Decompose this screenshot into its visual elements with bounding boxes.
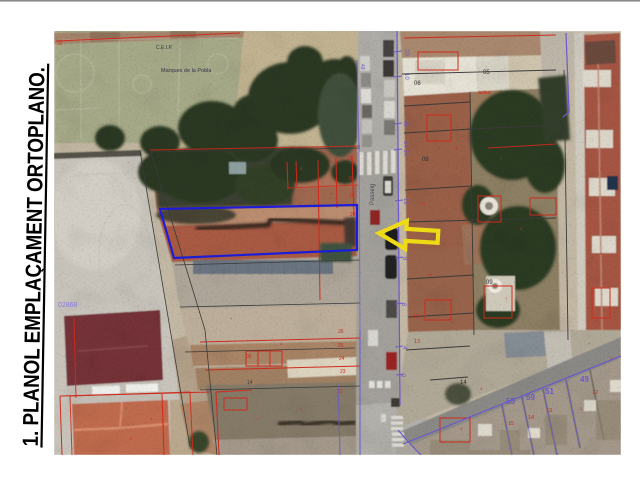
svg-text:06: 06 [414, 81, 421, 87]
svg-text:08: 08 [422, 157, 429, 163]
svg-text:12: 12 [592, 390, 598, 396]
svg-text:23: 23 [340, 369, 346, 375]
svg-text:32: 32 [57, 41, 63, 47]
svg-text:46: 46 [402, 120, 408, 127]
svg-text:00: 00 [246, 354, 252, 360]
svg-text:05: 05 [483, 70, 490, 76]
svg-text:59: 59 [526, 393, 535, 402]
svg-text:+8: +8 [420, 201, 425, 206]
svg-text:C.E.I.P.: C.E.I.P. [156, 45, 173, 51]
svg-text:28: 28 [350, 212, 356, 218]
svg-text:49: 49 [428, 272, 433, 277]
svg-text:09: 09 [486, 280, 493, 286]
svg-text:29: 29 [349, 193, 355, 199]
svg-text:14: 14 [247, 380, 253, 386]
svg-text:Marques de la Pobla: Marques de la Pobla [161, 68, 212, 74]
svg-text:12: 12 [402, 198, 408, 205]
svg-text:14: 14 [528, 415, 534, 421]
svg-text:15: 15 [508, 421, 514, 427]
svg-text:55: 55 [506, 397, 515, 406]
svg-text:30: 30 [348, 176, 354, 182]
svg-text:49: 49 [580, 375, 589, 384]
svg-text:02868: 02868 [58, 302, 78, 309]
svg-text:aviso: aviso [478, 90, 491, 96]
svg-text:10: 10 [403, 73, 409, 80]
svg-text:49: 49 [359, 64, 365, 70]
svg-text:Passeig: Passeig [370, 184, 376, 205]
svg-text:12: 12 [413, 314, 419, 320]
svg-text:24: 24 [339, 356, 345, 362]
svg-text:07: 07 [484, 136, 491, 142]
svg-text:26: 26 [338, 329, 344, 335]
svg-text:13: 13 [414, 339, 420, 345]
svg-text:51: 51 [545, 387, 554, 396]
svg-text:14 14: 14 14 [402, 141, 408, 157]
svg-text:14: 14 [460, 380, 467, 386]
svg-text:20: 20 [403, 49, 409, 56]
svg-text:31: 31 [347, 156, 353, 162]
